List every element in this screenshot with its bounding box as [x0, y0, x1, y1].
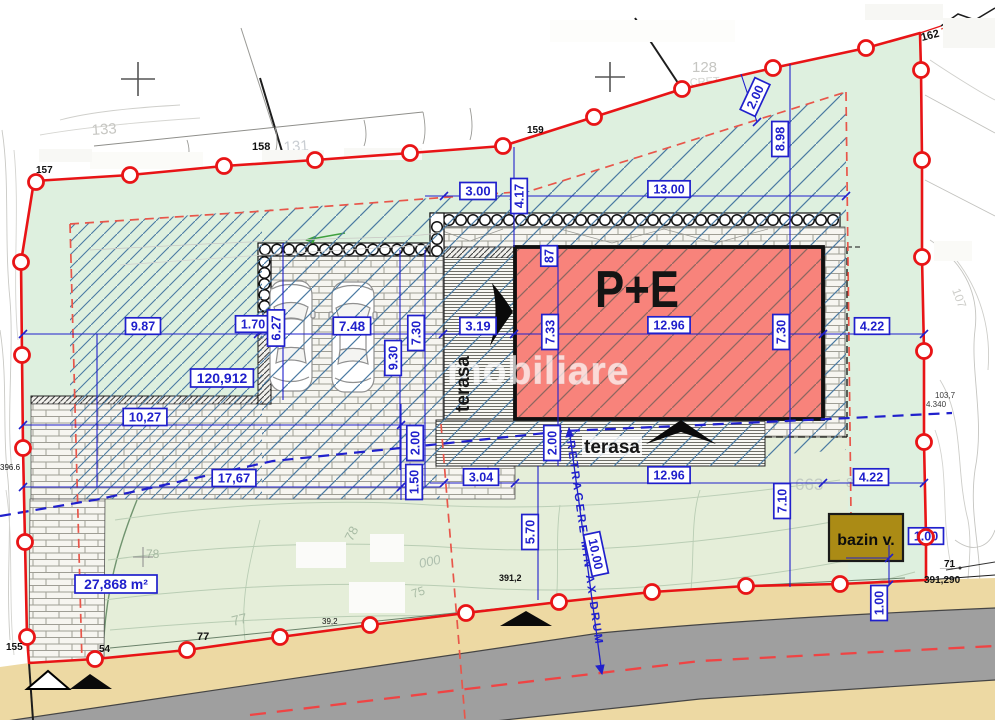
svg-text:1.00: 1.00 [873, 591, 887, 615]
svg-text:7.33: 7.33 [544, 320, 558, 344]
svg-text:396.6: 396.6 [0, 463, 21, 472]
svg-text:128: 128 [692, 59, 717, 76]
svg-text:9.87: 9.87 [131, 320, 155, 334]
svg-text:54: 54 [99, 644, 111, 655]
svg-text:1.70: 1.70 [241, 318, 265, 332]
svg-text:12.96: 12.96 [653, 469, 684, 483]
svg-text:10,27: 10,27 [129, 410, 162, 425]
svg-text:terasa: terasa [584, 437, 640, 458]
svg-text:12.96: 12.96 [653, 319, 684, 333]
svg-text:8.98: 8.98 [774, 127, 788, 151]
svg-text:133: 133 [91, 120, 117, 139]
svg-text:13.00: 13.00 [653, 183, 684, 197]
svg-text:7.30: 7.30 [775, 320, 789, 344]
svg-text:3.00: 3.00 [465, 184, 490, 199]
svg-text:77: 77 [197, 631, 209, 643]
svg-text:4.22: 4.22 [860, 320, 884, 334]
svg-text:6.27: 6.27 [269, 315, 284, 340]
svg-text:terasa: terasa [453, 356, 474, 412]
svg-text:mobiliare: mobiliare [447, 350, 629, 393]
svg-text:2.00: 2.00 [546, 431, 560, 455]
svg-text:103,7: 103,7 [935, 391, 956, 400]
svg-text:7.10: 7.10 [776, 489, 790, 513]
svg-text:158: 158 [252, 141, 270, 153]
svg-text:P+E: P+E [595, 261, 679, 319]
svg-text:39,2: 39,2 [322, 617, 338, 626]
svg-text:3.19: 3.19 [465, 319, 490, 334]
svg-text:17,67: 17,67 [218, 471, 251, 486]
svg-text:391,2: 391,2 [499, 573, 522, 583]
svg-text:663: 663 [795, 475, 823, 494]
svg-text:157: 157 [36, 165, 53, 176]
svg-text:9.30: 9.30 [387, 346, 401, 370]
svg-text:7.30: 7.30 [410, 321, 424, 345]
svg-text:5.70: 5.70 [524, 520, 538, 544]
svg-text:87: 87 [543, 249, 557, 263]
svg-text:7.48: 7.48 [339, 319, 366, 334]
svg-text:4.340: 4.340 [926, 400, 947, 409]
svg-text:4.17: 4.17 [513, 184, 527, 208]
svg-text:155: 155 [6, 642, 23, 653]
svg-text:120,912: 120,912 [197, 370, 248, 386]
svg-text:bazin v.: bazin v. [837, 532, 895, 549]
svg-text:27,868 m²: 27,868 m² [84, 576, 148, 592]
svg-text:2.00: 2.00 [409, 431, 423, 455]
svg-text:78: 78 [146, 547, 160, 561]
svg-text:1.50: 1.50 [408, 470, 422, 494]
svg-text:391,290: 391,290 [924, 575, 961, 586]
svg-text:3.04: 3.04 [469, 471, 493, 485]
svg-text:4.22: 4.22 [859, 471, 883, 485]
svg-text:159: 159 [527, 125, 544, 136]
